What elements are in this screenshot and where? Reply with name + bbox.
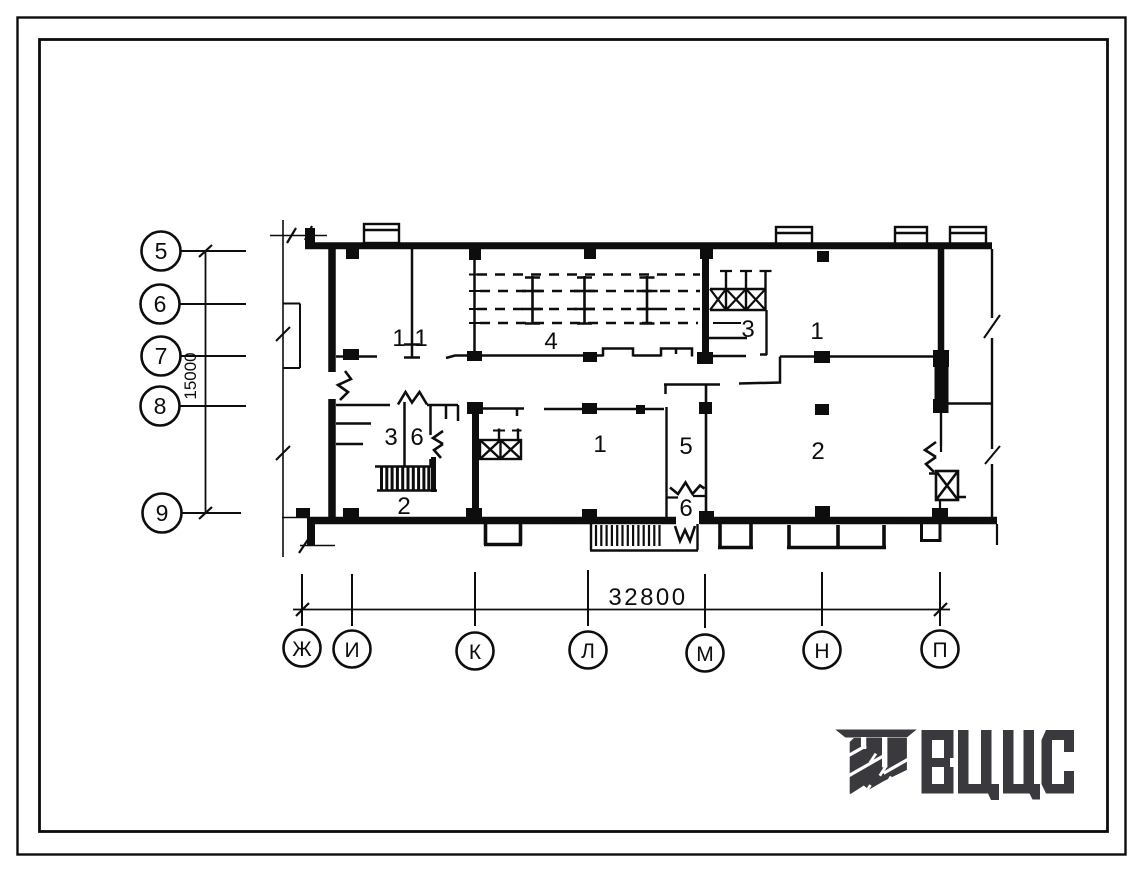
svg-text:7: 7	[155, 343, 168, 369]
svg-text:6: 6	[154, 291, 167, 317]
svg-text:4: 4	[544, 328, 557, 355]
svg-text:Л: Л	[581, 640, 595, 663]
svg-text:6: 6	[410, 424, 423, 451]
svg-text:1: 1	[593, 431, 606, 458]
svg-text:3: 3	[384, 424, 397, 451]
svg-text:1: 1	[414, 325, 427, 352]
svg-text:5: 5	[679, 433, 692, 460]
svg-text:15000: 15000	[181, 352, 200, 399]
svg-text:6: 6	[679, 495, 692, 522]
svg-text:1: 1	[392, 325, 405, 352]
svg-text:Н: Н	[814, 640, 829, 663]
svg-text:И: И	[344, 639, 359, 662]
svg-text:32800: 32800	[608, 584, 687, 611]
svg-text:М: М	[696, 643, 714, 666]
svg-text:К: К	[469, 641, 482, 664]
svg-text:П: П	[932, 639, 947, 662]
svg-text:3: 3	[741, 316, 754, 343]
svg-text:8: 8	[154, 393, 167, 419]
svg-text:2: 2	[397, 493, 410, 520]
svg-text:Ж: Ж	[292, 638, 312, 661]
svg-text:5: 5	[155, 238, 168, 264]
svg-text:9: 9	[156, 500, 169, 526]
svg-text:1: 1	[810, 318, 823, 345]
svg-text:2: 2	[811, 438, 824, 465]
